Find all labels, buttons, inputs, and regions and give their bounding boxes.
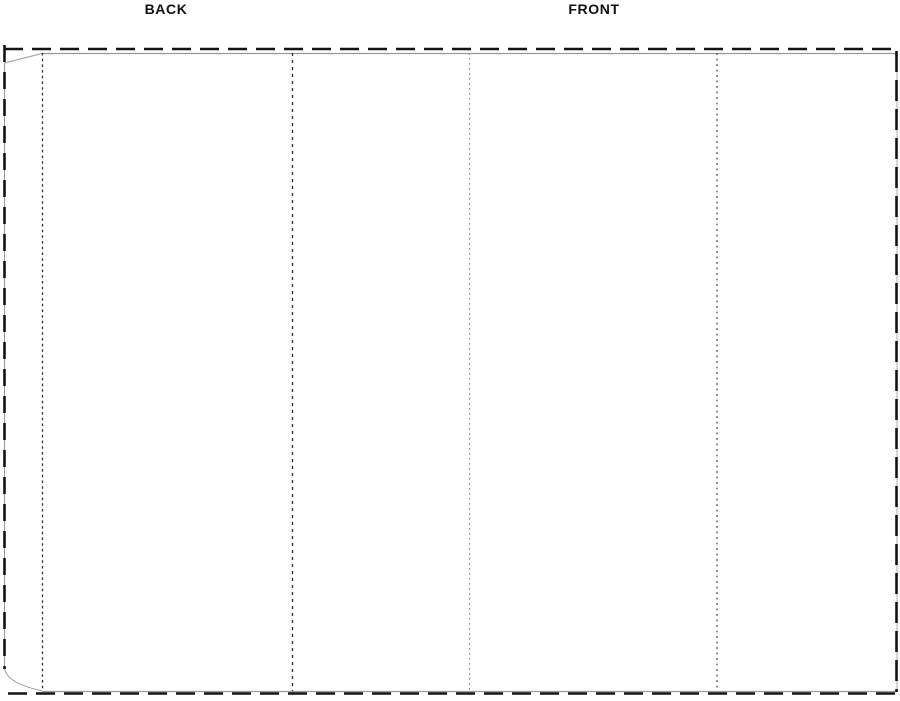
- glue-flap-top-taper-line: [5, 54, 43, 64]
- template-canvas: BACK FRONT: [0, 0, 900, 701]
- glue-flap-bottom-taper-line: [5, 668, 43, 691]
- dieline-drawing: [0, 0, 900, 701]
